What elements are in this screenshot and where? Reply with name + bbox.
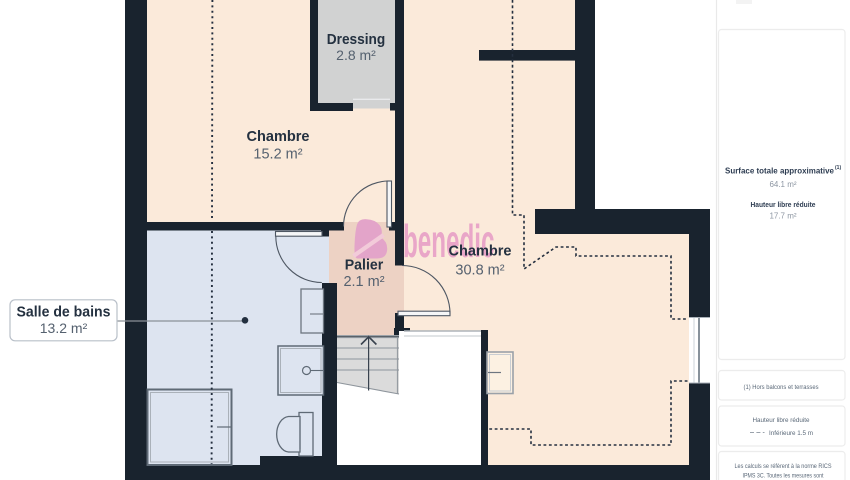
svg-text:Hauteur libre réduite: Hauteur libre réduite <box>753 417 810 424</box>
svg-text:Palier: Palier <box>345 258 384 274</box>
svg-text:Les calculs se réfèrent à la n: Les calculs se réfèrent à la norme RICS <box>735 463 832 470</box>
svg-text:Surface totale approximative: Surface totale approximative <box>725 166 835 175</box>
svg-text:30.8 m²: 30.8 m² <box>455 263 504 279</box>
svg-text:(1) Hors balcons et terrasses: (1) Hors balcons et terrasses <box>744 384 819 391</box>
svg-text:Chambre: Chambre <box>449 244 512 260</box>
svg-text:Inférieure 1.5 m: Inférieure 1.5 m <box>769 430 813 437</box>
svg-text:64.1 m²: 64.1 m² <box>769 180 796 189</box>
svg-text:2.8 m²: 2.8 m² <box>336 47 376 63</box>
svg-text:2.1 m²: 2.1 m² <box>343 274 384 290</box>
svg-text:Salle de bains: Salle de bains <box>17 305 111 321</box>
svg-text:Chambre: Chambre <box>247 129 310 145</box>
svg-text:Dressing: Dressing <box>327 32 386 48</box>
svg-text:15.2 m²: 15.2 m² <box>253 147 302 163</box>
svg-text:Hauteur libre réduite: Hauteur libre réduite <box>751 200 816 209</box>
svg-text:(1): (1) <box>835 165 841 171</box>
svg-text:17.7 m²: 17.7 m² <box>769 212 796 221</box>
svg-text:IPMS 3C. Toutes les mesures so: IPMS 3C. Toutes les mesures sont <box>743 472 824 479</box>
svg-text:13.2 m²: 13.2 m² <box>40 320 88 336</box>
